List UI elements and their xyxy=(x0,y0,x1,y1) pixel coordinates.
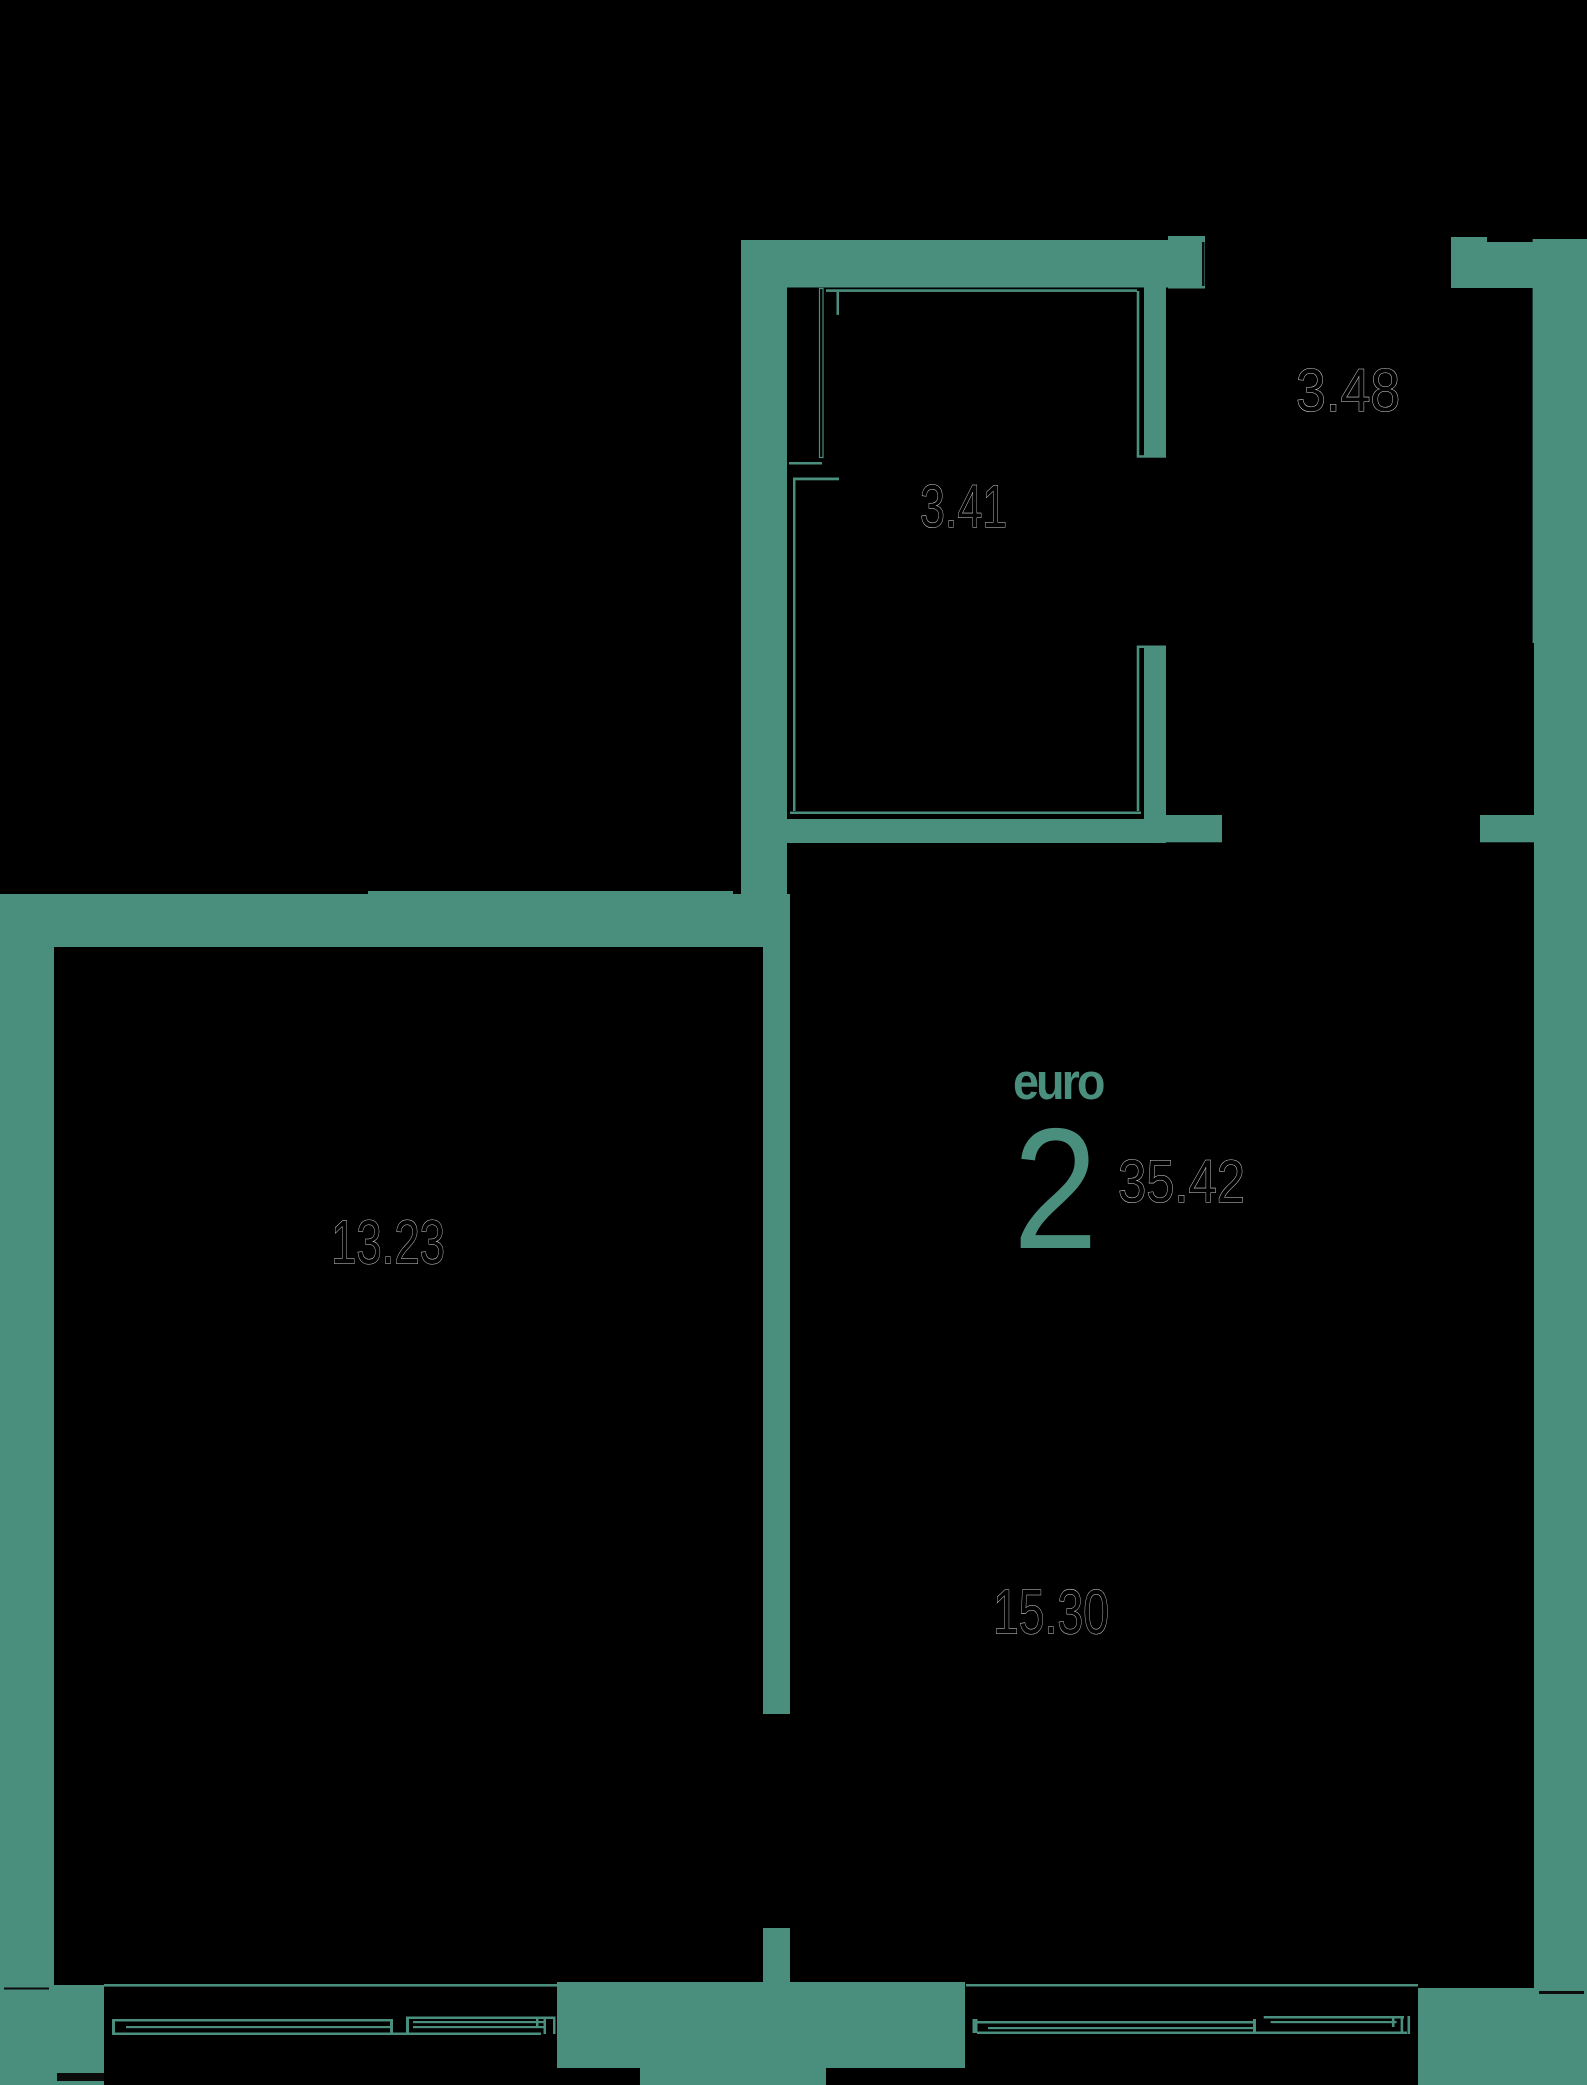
svg-text:2: 2 xyxy=(1013,1094,1098,1285)
svg-text:3.48: 3.48 xyxy=(1296,357,1400,425)
svg-text:15.30: 15.30 xyxy=(993,1577,1109,1648)
svg-text:35.42: 35.42 xyxy=(1118,1147,1245,1215)
svg-text:13.23: 13.23 xyxy=(331,1208,445,1278)
svg-text:3.41: 3.41 xyxy=(920,474,1007,541)
